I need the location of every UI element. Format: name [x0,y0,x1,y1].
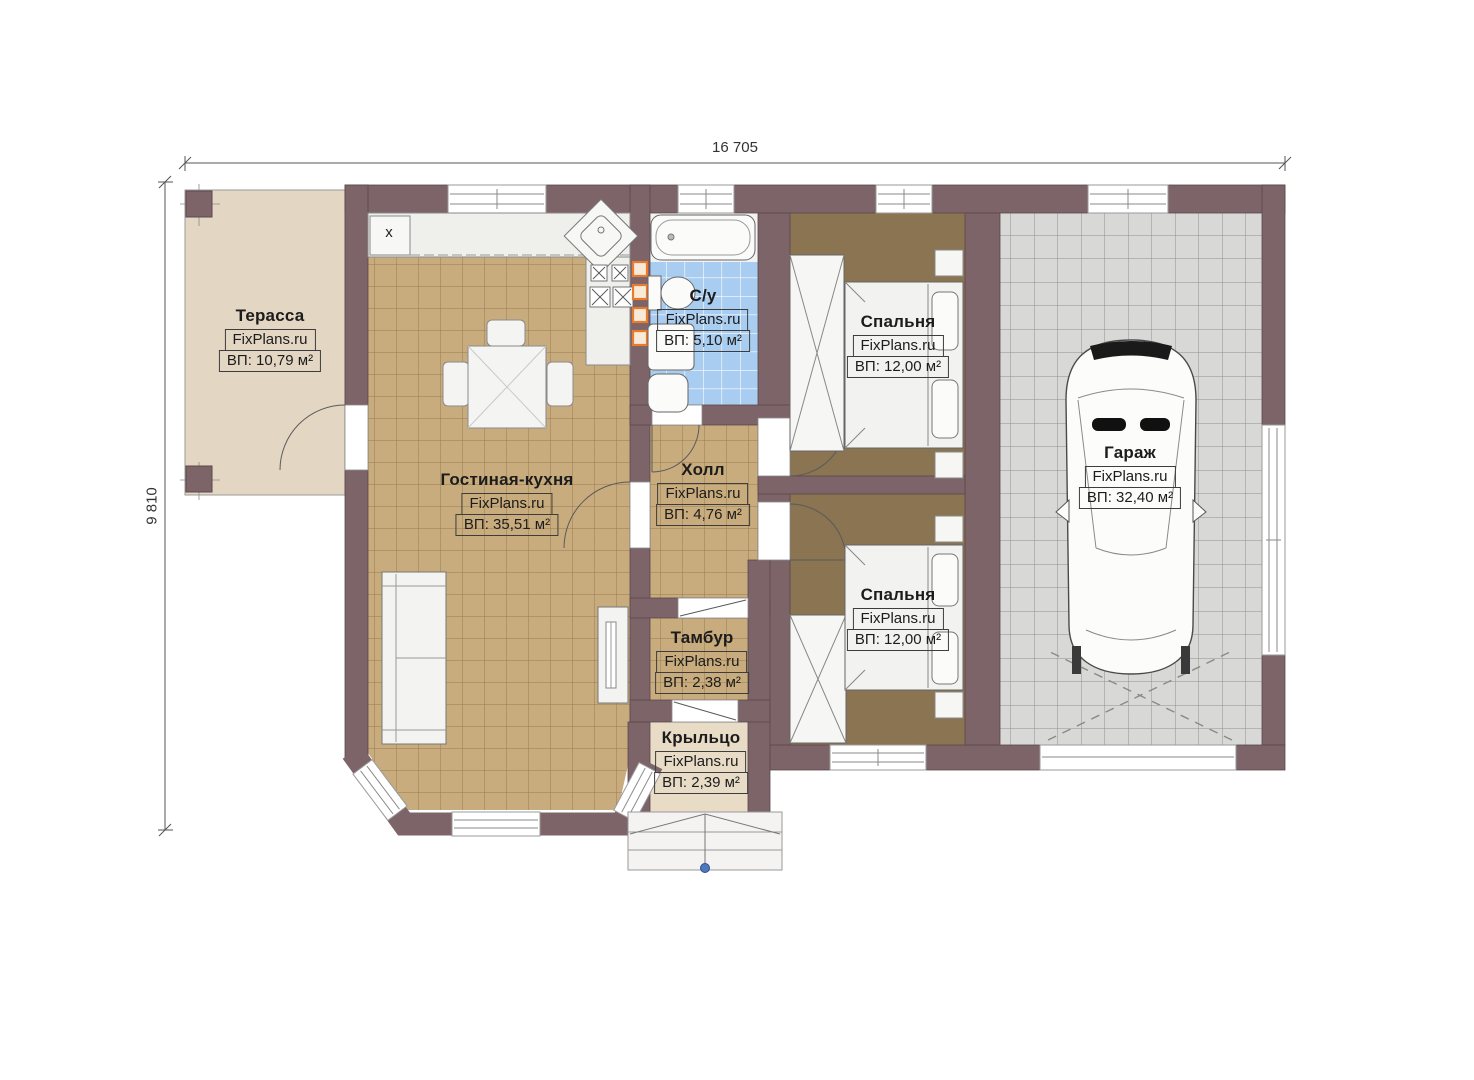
chair-top [487,320,525,346]
room-label-hall: Холл FixPlans.ru ВП: 4,76 м² [656,460,750,526]
area-box: ВП: 35,51 м² [456,514,558,536]
floor-plan-canvas: 16 705 9 810 х Терасса FixPlans.ru ВП: 1… [0,0,1474,1080]
brand-box: FixPlans.ru [657,309,748,331]
room-name: Гостиная-кухня [440,470,573,490]
chair-left [443,362,469,406]
brand-box: FixPlans.ru [655,751,746,773]
dimension-height-label: 9 810 [144,487,161,525]
room-label-bedroom1: Спальня FixPlans.ru ВП: 12,00 м² [847,312,949,378]
car-roof-mark [1140,418,1170,431]
room-label-living: Гостиная-кухня FixPlans.ru ВП: 35,51 м² [440,470,573,536]
room-name: Терасса [236,306,305,326]
room-name: Спальня [861,585,936,605]
wardrobe-1 [790,255,844,451]
window-bedroom2-bottom [830,745,926,770]
porch-steps [628,812,782,873]
area-box: ВП: 12,00 м² [847,356,949,378]
room-label-vestibule: Тамбур FixPlans.ru ВП: 2,38 м² [655,628,749,694]
garage-door [1040,745,1236,770]
dimension-width-label: 16 705 [712,139,758,156]
nightstand [935,250,963,276]
dimension-line-top [179,156,1291,171]
brand-box: FixPlans.ru [461,493,552,515]
room-label-bedroom2: Спальня FixPlans.ru ВП: 12,00 м² [847,585,949,651]
room-name: С/у [689,286,716,306]
car-wheel [1181,646,1190,674]
area-box: ВП: 10,79 м² [219,350,321,372]
brand-box: FixPlans.ru [852,608,943,630]
window-bathroom-top [678,185,734,213]
brand-box: FixPlans.ru [656,651,747,673]
bathtub-icon [651,215,755,260]
car-roof-mark [1092,418,1126,431]
car-wheel [1072,646,1081,674]
area-box: ВП: 32,40 м² [1079,487,1181,509]
pillow [932,380,958,438]
tv-stand [598,607,628,703]
room-name: Спальня [861,312,936,332]
room-name: Гараж [1104,443,1156,463]
nightstand [935,692,963,718]
wardrobe-2 [790,615,846,743]
area-box: ВП: 2,38 м² [655,672,749,694]
window-garage-top [1088,185,1168,213]
window-bedroom1-top [876,185,932,213]
area-box: ВП: 4,76 м² [656,504,750,526]
room-label-garage: Гараж FixPlans.ru ВП: 32,40 м² [1079,443,1181,509]
room-label-bathroom: С/у FixPlans.ru ВП: 5,10 м² [656,286,750,352]
room-name: Холл [681,460,724,480]
brand-box: FixPlans.ru [657,483,748,505]
nightstand [935,452,963,478]
sofa [382,572,446,744]
brand-box: FixPlans.ru [1084,466,1175,488]
room-name: Тамбур [671,628,734,648]
entry-marker-dot [701,864,710,873]
area-box: ВП: 5,10 м² [656,330,750,352]
brand-box: FixPlans.ru [852,335,943,357]
window-bay-bottom [452,812,540,836]
floor-plan-drawing [0,0,1474,1080]
room-label-porch: Крыльцо FixPlans.ru ВП: 2,39 м² [654,728,748,794]
area-box: ВП: 12,00 м² [847,629,949,651]
room-name: Крыльцо [662,728,741,748]
area-box: ВП: 2,39 м² [654,772,748,794]
room-label-terrace: Терасса FixPlans.ru ВП: 10,79 м² [219,306,321,372]
window-garage-right [1262,425,1285,655]
kitchen-marker: х [385,224,393,241]
nightstand [935,516,963,542]
chair-right [547,362,573,406]
brand-box: FixPlans.ru [224,329,315,351]
window-living-top [448,185,546,213]
